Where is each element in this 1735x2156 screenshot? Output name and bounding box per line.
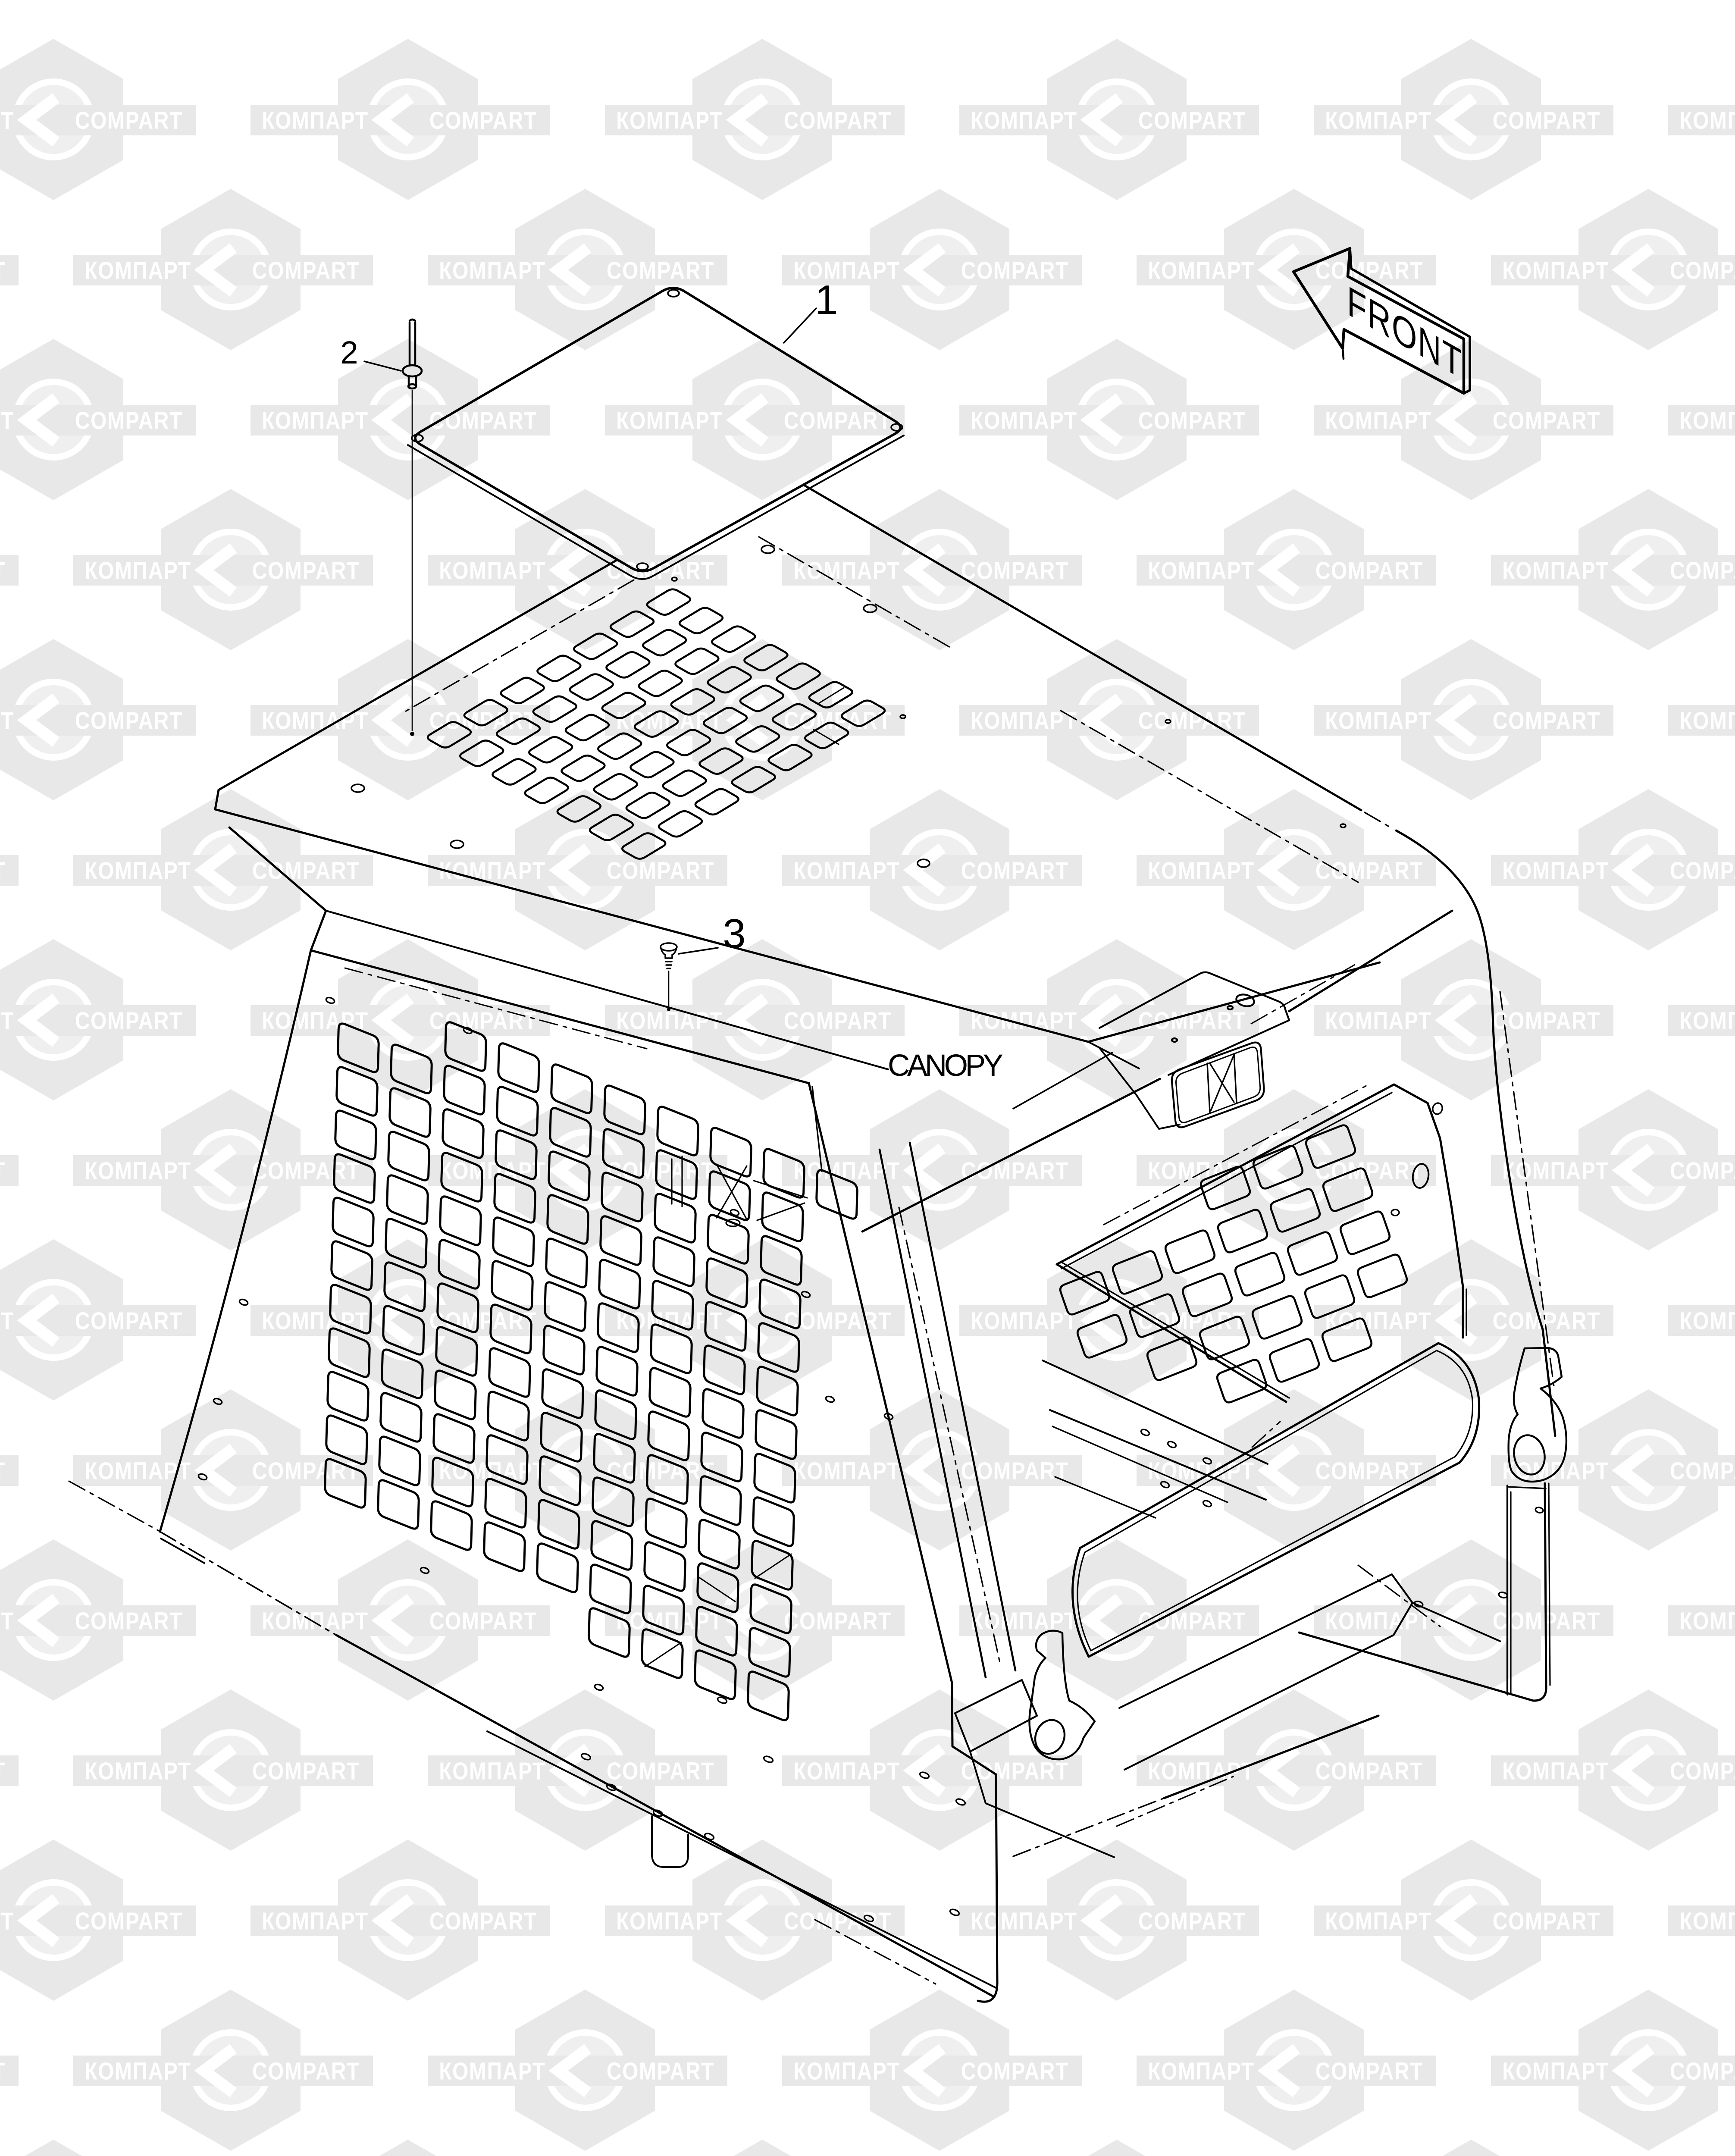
svg-text:CANOPY: CANOPY — [888, 1049, 1003, 1083]
svg-text:3: 3 — [723, 911, 745, 957]
svg-text:FRONT: FRONT — [1347, 277, 1463, 389]
svg-text:2: 2 — [340, 335, 358, 370]
svg-text:1: 1 — [815, 277, 838, 323]
